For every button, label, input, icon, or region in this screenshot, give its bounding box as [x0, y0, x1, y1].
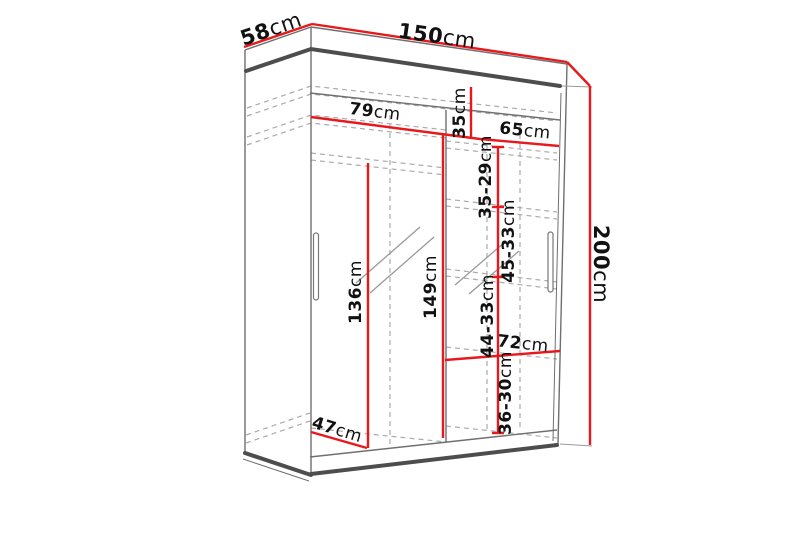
door-handle-right [548, 232, 553, 292]
wardrobe-dimension-diagram: 58cm 150cm 200cm 79cm 65cm 35cm 35-29cm … [0, 0, 800, 533]
dim-label-45-33: 45-33cm [499, 199, 519, 283]
wardrobe-line-art [0, 0, 800, 533]
dim-label-35-29: 35-29cm [476, 135, 496, 219]
dim-label-136: 136cm [346, 260, 366, 324]
dim-label-36-30: 36-30cm [496, 351, 516, 435]
door-handle-left [314, 233, 319, 300]
dim-label-44-33: 44-33cm [478, 274, 498, 358]
dim-label-35: 35cm [450, 87, 470, 139]
dim-label-height-200: 200cm [589, 225, 613, 303]
dimension-lines [244, 24, 590, 448]
dim-label-149: 149cm [421, 255, 441, 319]
